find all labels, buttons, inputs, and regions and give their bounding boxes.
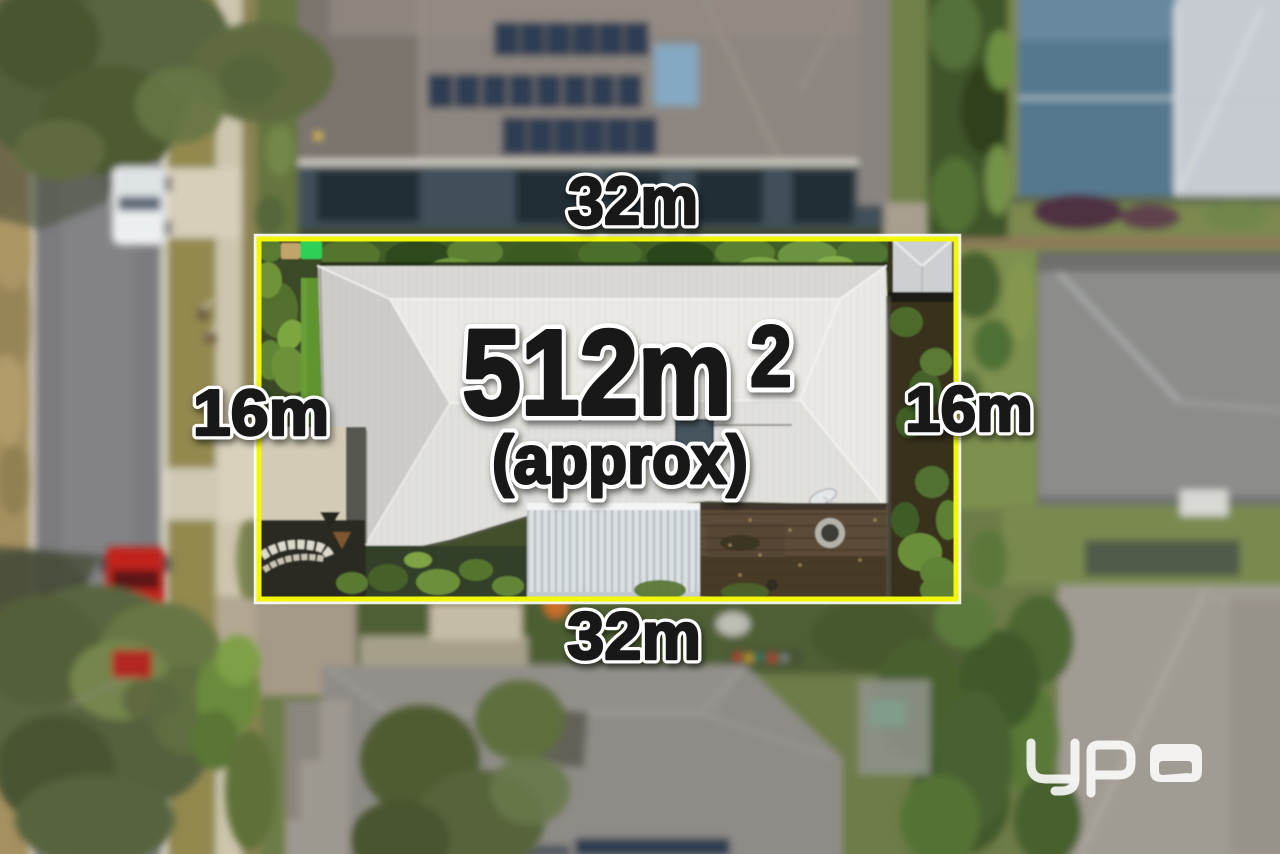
svg-text:32m: 32m: [567, 599, 701, 674]
svg-text:32m: 32m: [568, 164, 699, 239]
svg-text:16m: 16m: [193, 377, 330, 449]
svg-text:16m: 16m: [905, 373, 1033, 445]
svg-text:(approx): (approx): [492, 421, 748, 497]
svg-text:2: 2: [750, 309, 792, 405]
